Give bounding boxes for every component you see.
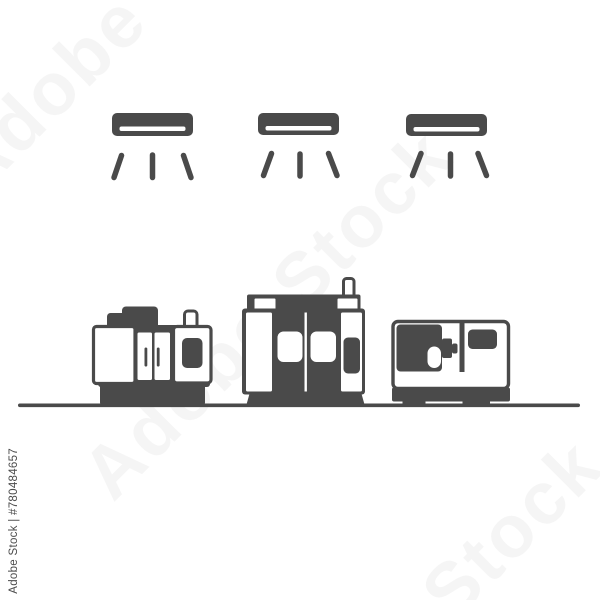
machining-center-icon [242,279,365,405]
stock-image-canvas: Adobe Stock Adobe Stock Adobe Stock [0,0,600,600]
stock-id-watermark: Adobe Stock | #780484657 [8,448,20,594]
cnc-milling-machine-icon [94,307,212,405]
ceiling-light-icon [406,114,487,176]
factory-machines-illustration [0,0,600,600]
floor-line [18,404,580,408]
ceiling-light-icon [258,113,339,176]
ceiling-light-icon [112,113,193,178]
cnc-lathe-icon [392,322,510,407]
